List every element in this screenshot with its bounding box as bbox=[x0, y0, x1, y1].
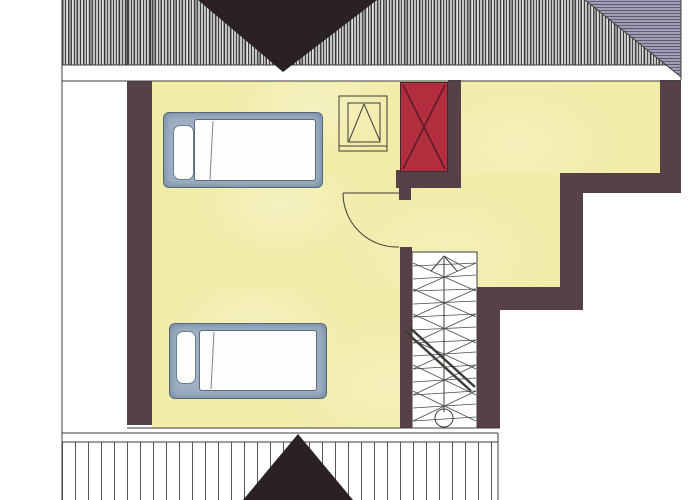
wall-stair-right bbox=[477, 310, 500, 428]
wall-door-jamb bbox=[399, 186, 411, 200]
wall-step-horizontal-2 bbox=[477, 287, 583, 310]
wall-step-horizontal-1 bbox=[560, 173, 660, 193]
bed-top-mattress bbox=[194, 119, 316, 181]
staircase-shaft bbox=[412, 252, 477, 428]
floor-area-middle bbox=[152, 173, 560, 287]
roof-hatch-top bbox=[62, 0, 681, 65]
floor-plan bbox=[0, 0, 700, 500]
bed-top-pillow bbox=[173, 125, 194, 180]
roof-hatch-bottom bbox=[62, 442, 498, 500]
bed-bottom-pillow bbox=[176, 331, 196, 384]
chimney bbox=[400, 82, 448, 172]
wall-east-upper bbox=[660, 80, 681, 193]
wall-stair-left bbox=[400, 247, 412, 428]
bed-bottom-mattress bbox=[199, 330, 317, 391]
wall-west bbox=[127, 81, 152, 425]
